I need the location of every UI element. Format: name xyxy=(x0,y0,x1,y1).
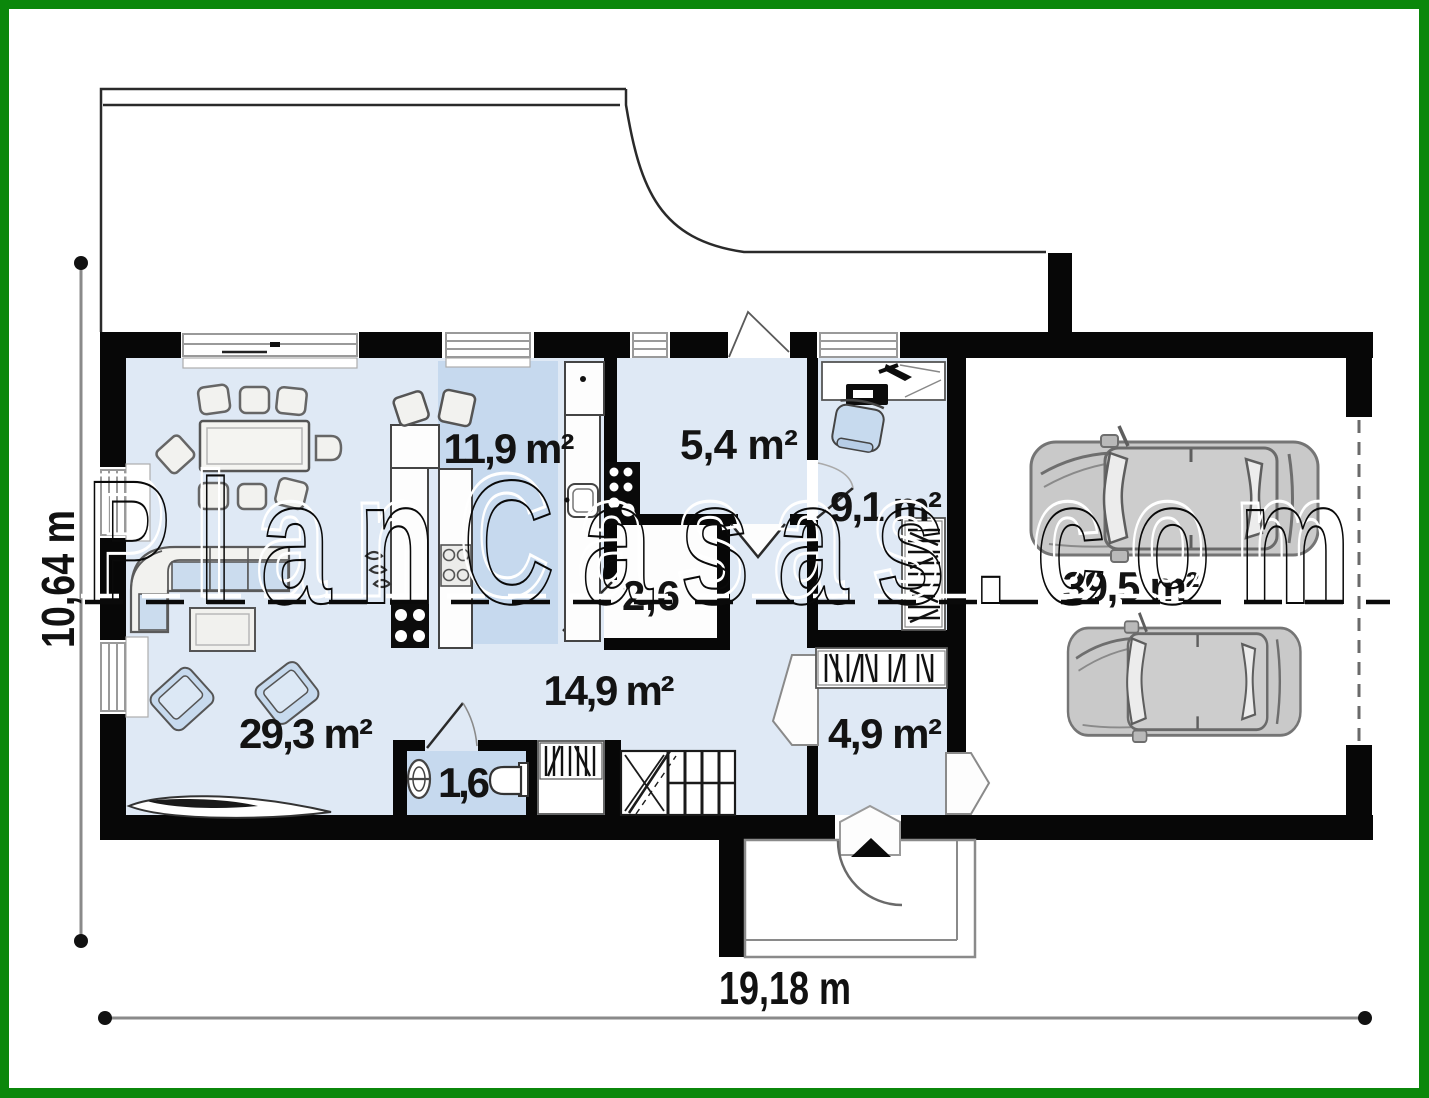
svg-text:10,64 m: 10,64 m xyxy=(32,510,84,648)
svg-text:4,9 m²: 4,9 m² xyxy=(828,710,942,757)
svg-text:PlanCasas.com: PlanCasas.com xyxy=(86,445,1378,641)
svg-text:19,18 m: 19,18 m xyxy=(719,962,851,1014)
svg-text:14,9 m²: 14,9 m² xyxy=(544,667,675,714)
svg-text:1,6: 1,6 xyxy=(438,759,490,806)
svg-text:29,3 m²: 29,3 m² xyxy=(239,710,373,757)
